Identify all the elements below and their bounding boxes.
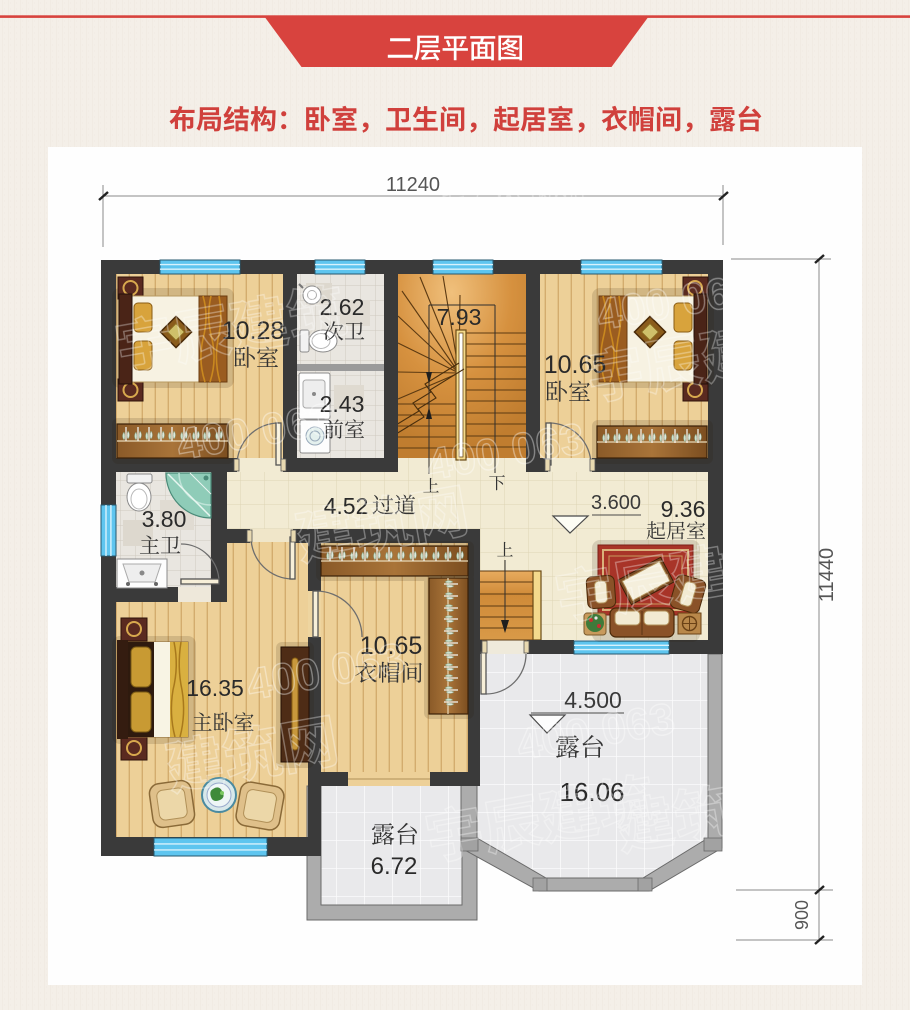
svg-text:16.35: 16.35: [186, 675, 244, 701]
svg-text:3.600: 3.600: [591, 492, 641, 514]
svg-text:9.36: 9.36: [661, 496, 706, 522]
svg-text:7.93: 7.93: [437, 304, 482, 330]
svg-text:3.80: 3.80: [142, 506, 187, 532]
svg-text:11240: 11240: [386, 174, 440, 196]
svg-text:6.72: 6.72: [371, 853, 418, 880]
svg-text:11440: 11440: [816, 548, 838, 602]
svg-text:900: 900: [792, 900, 812, 930]
